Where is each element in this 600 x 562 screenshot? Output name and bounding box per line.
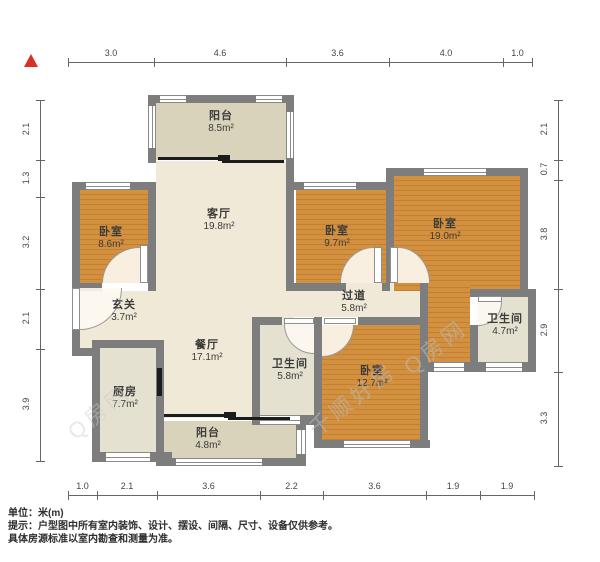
window [176, 458, 262, 466]
window [106, 452, 150, 462]
window [256, 95, 282, 103]
dimension-line [40, 100, 41, 461]
dimension-value: 1.9 [497, 481, 517, 491]
door-leaf [374, 247, 382, 283]
dimension-line [68, 495, 534, 496]
wall [358, 317, 422, 325]
dimension-value: 3.6 [328, 48, 348, 58]
dimension-tick [503, 58, 504, 67]
dimension-value: 3.9 [21, 394, 31, 414]
window [296, 430, 306, 454]
dimension-value: 3.2 [21, 232, 31, 252]
dimension-value: 3.6 [199, 481, 219, 491]
dimension-value: 4.0 [436, 48, 456, 58]
dimension-value: 2.1 [21, 119, 31, 139]
wall [286, 283, 346, 291]
dimension-line [68, 62, 532, 63]
dimension-value: 1.0 [508, 48, 528, 58]
dimension-tick [157, 491, 158, 500]
wall [72, 182, 80, 288]
door-leaf [390, 247, 398, 283]
dimension-tick [480, 491, 481, 500]
dimension-tick [68, 491, 69, 500]
window [424, 168, 486, 176]
wall [528, 289, 536, 370]
window [160, 95, 186, 103]
window [486, 362, 522, 372]
window [434, 362, 464, 372]
dimension-tick [97, 491, 98, 500]
dimension-value: 2.1 [21, 308, 31, 328]
dimension-tick [36, 160, 45, 161]
sliding-door [228, 417, 290, 420]
north-arrow-icon [24, 54, 38, 67]
dimension-tick [36, 100, 45, 101]
dimension-value: 2.1 [539, 119, 549, 139]
dimension-value: 3.6 [365, 481, 385, 491]
dimension-tick [286, 58, 287, 67]
sliding-door [218, 155, 230, 161]
window [344, 440, 410, 448]
dimension-tick [554, 289, 563, 290]
wall [520, 168, 528, 297]
dimension-value: 1.9 [443, 481, 463, 491]
dimension-tick [389, 58, 390, 67]
dimension-tick [534, 491, 535, 500]
dimension-tick [36, 349, 45, 350]
dimension-tick [68, 58, 69, 67]
dimension-tick [554, 160, 563, 161]
wall [148, 182, 156, 291]
room-floor-balcony [154, 103, 288, 160]
wall [92, 340, 164, 348]
window [148, 106, 156, 148]
dimension-tick [260, 491, 261, 500]
dimension-value: 3.0 [101, 48, 121, 58]
door-leaf [72, 288, 80, 330]
window [86, 182, 130, 190]
door-leaf [324, 318, 356, 324]
dimension-value: 3.8 [539, 224, 549, 244]
wall [420, 283, 428, 448]
sliding-door [224, 412, 236, 418]
door-leaf [140, 245, 148, 283]
dimension-tick [36, 289, 45, 290]
sliding-door [222, 160, 284, 163]
sliding-door [164, 414, 228, 417]
dimension-value: 0.7 [539, 159, 549, 179]
dimension-tick [554, 180, 563, 181]
dimension-value: 1.3 [21, 168, 31, 188]
dimension-value: 2.2 [282, 481, 302, 491]
dimension-tick [36, 461, 45, 462]
dimension-tick [532, 58, 533, 67]
window [304, 182, 356, 190]
room-floor-kitchen [100, 348, 156, 452]
room-floor-balcony-bottom [164, 421, 296, 458]
sliding-door [158, 157, 224, 160]
dimension-value: 4.6 [210, 48, 230, 58]
dimension-tick [554, 372, 563, 373]
dimension-tick [554, 466, 563, 467]
sliding-door [157, 368, 162, 396]
dimension-value: 3.3 [539, 408, 549, 428]
floor-plan: 阳台 8.5m² 客厅 19.8m² 卧室 8.6m² 玄关 3.7m² 餐厅 … [0, 0, 600, 562]
window [286, 112, 294, 158]
wall [382, 283, 390, 291]
wall [156, 340, 164, 462]
wall [92, 348, 100, 460]
dimension-value: 1.0 [73, 481, 93, 491]
wall [470, 289, 478, 297]
footer-note-2: 具体房源标准以室内勘查和测量为准。 [8, 530, 178, 545]
dimension-tick [323, 491, 324, 500]
dimension-tick [554, 100, 563, 101]
wall [314, 317, 322, 448]
dimension-value: 2.1 [117, 481, 137, 491]
wall [252, 317, 260, 425]
dimension-tick [36, 197, 45, 198]
dimension-value: 2.9 [539, 320, 549, 340]
room-floor-bedroom-right-leg [428, 283, 470, 362]
dimension-tick [426, 491, 427, 500]
dimension-line [558, 100, 559, 466]
dimension-tick [154, 58, 155, 67]
